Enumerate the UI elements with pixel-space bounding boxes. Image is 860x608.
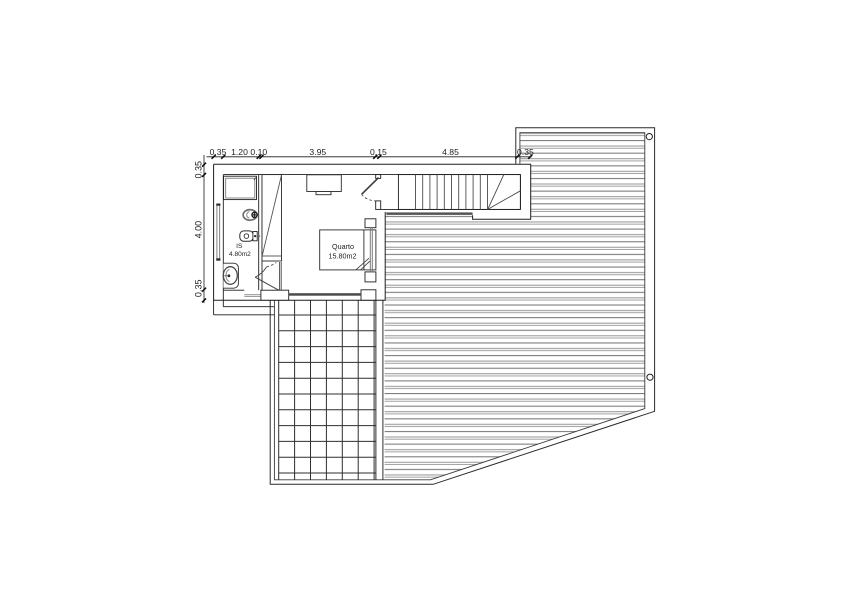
- svg-text:0.35: 0.35: [194, 161, 204, 179]
- svg-text:15.80m2: 15.80m2: [329, 252, 357, 261]
- svg-text:4.00: 4.00: [194, 221, 204, 239]
- svg-text:0.15: 0.15: [370, 147, 387, 157]
- svg-text:IS: IS: [236, 243, 243, 250]
- svg-text:0.35: 0.35: [210, 147, 227, 157]
- svg-text:0.10: 0.10: [250, 147, 267, 157]
- svg-text:3.95: 3.95: [309, 147, 326, 157]
- svg-text:4.85: 4.85: [442, 147, 459, 157]
- svg-text:Quarto: Quarto: [332, 242, 354, 251]
- svg-text:0.35: 0.35: [194, 280, 204, 298]
- svg-text:1.20: 1.20: [231, 147, 248, 157]
- svg-text:0.35: 0.35: [517, 147, 534, 157]
- svg-text:4.80m2: 4.80m2: [229, 251, 251, 258]
